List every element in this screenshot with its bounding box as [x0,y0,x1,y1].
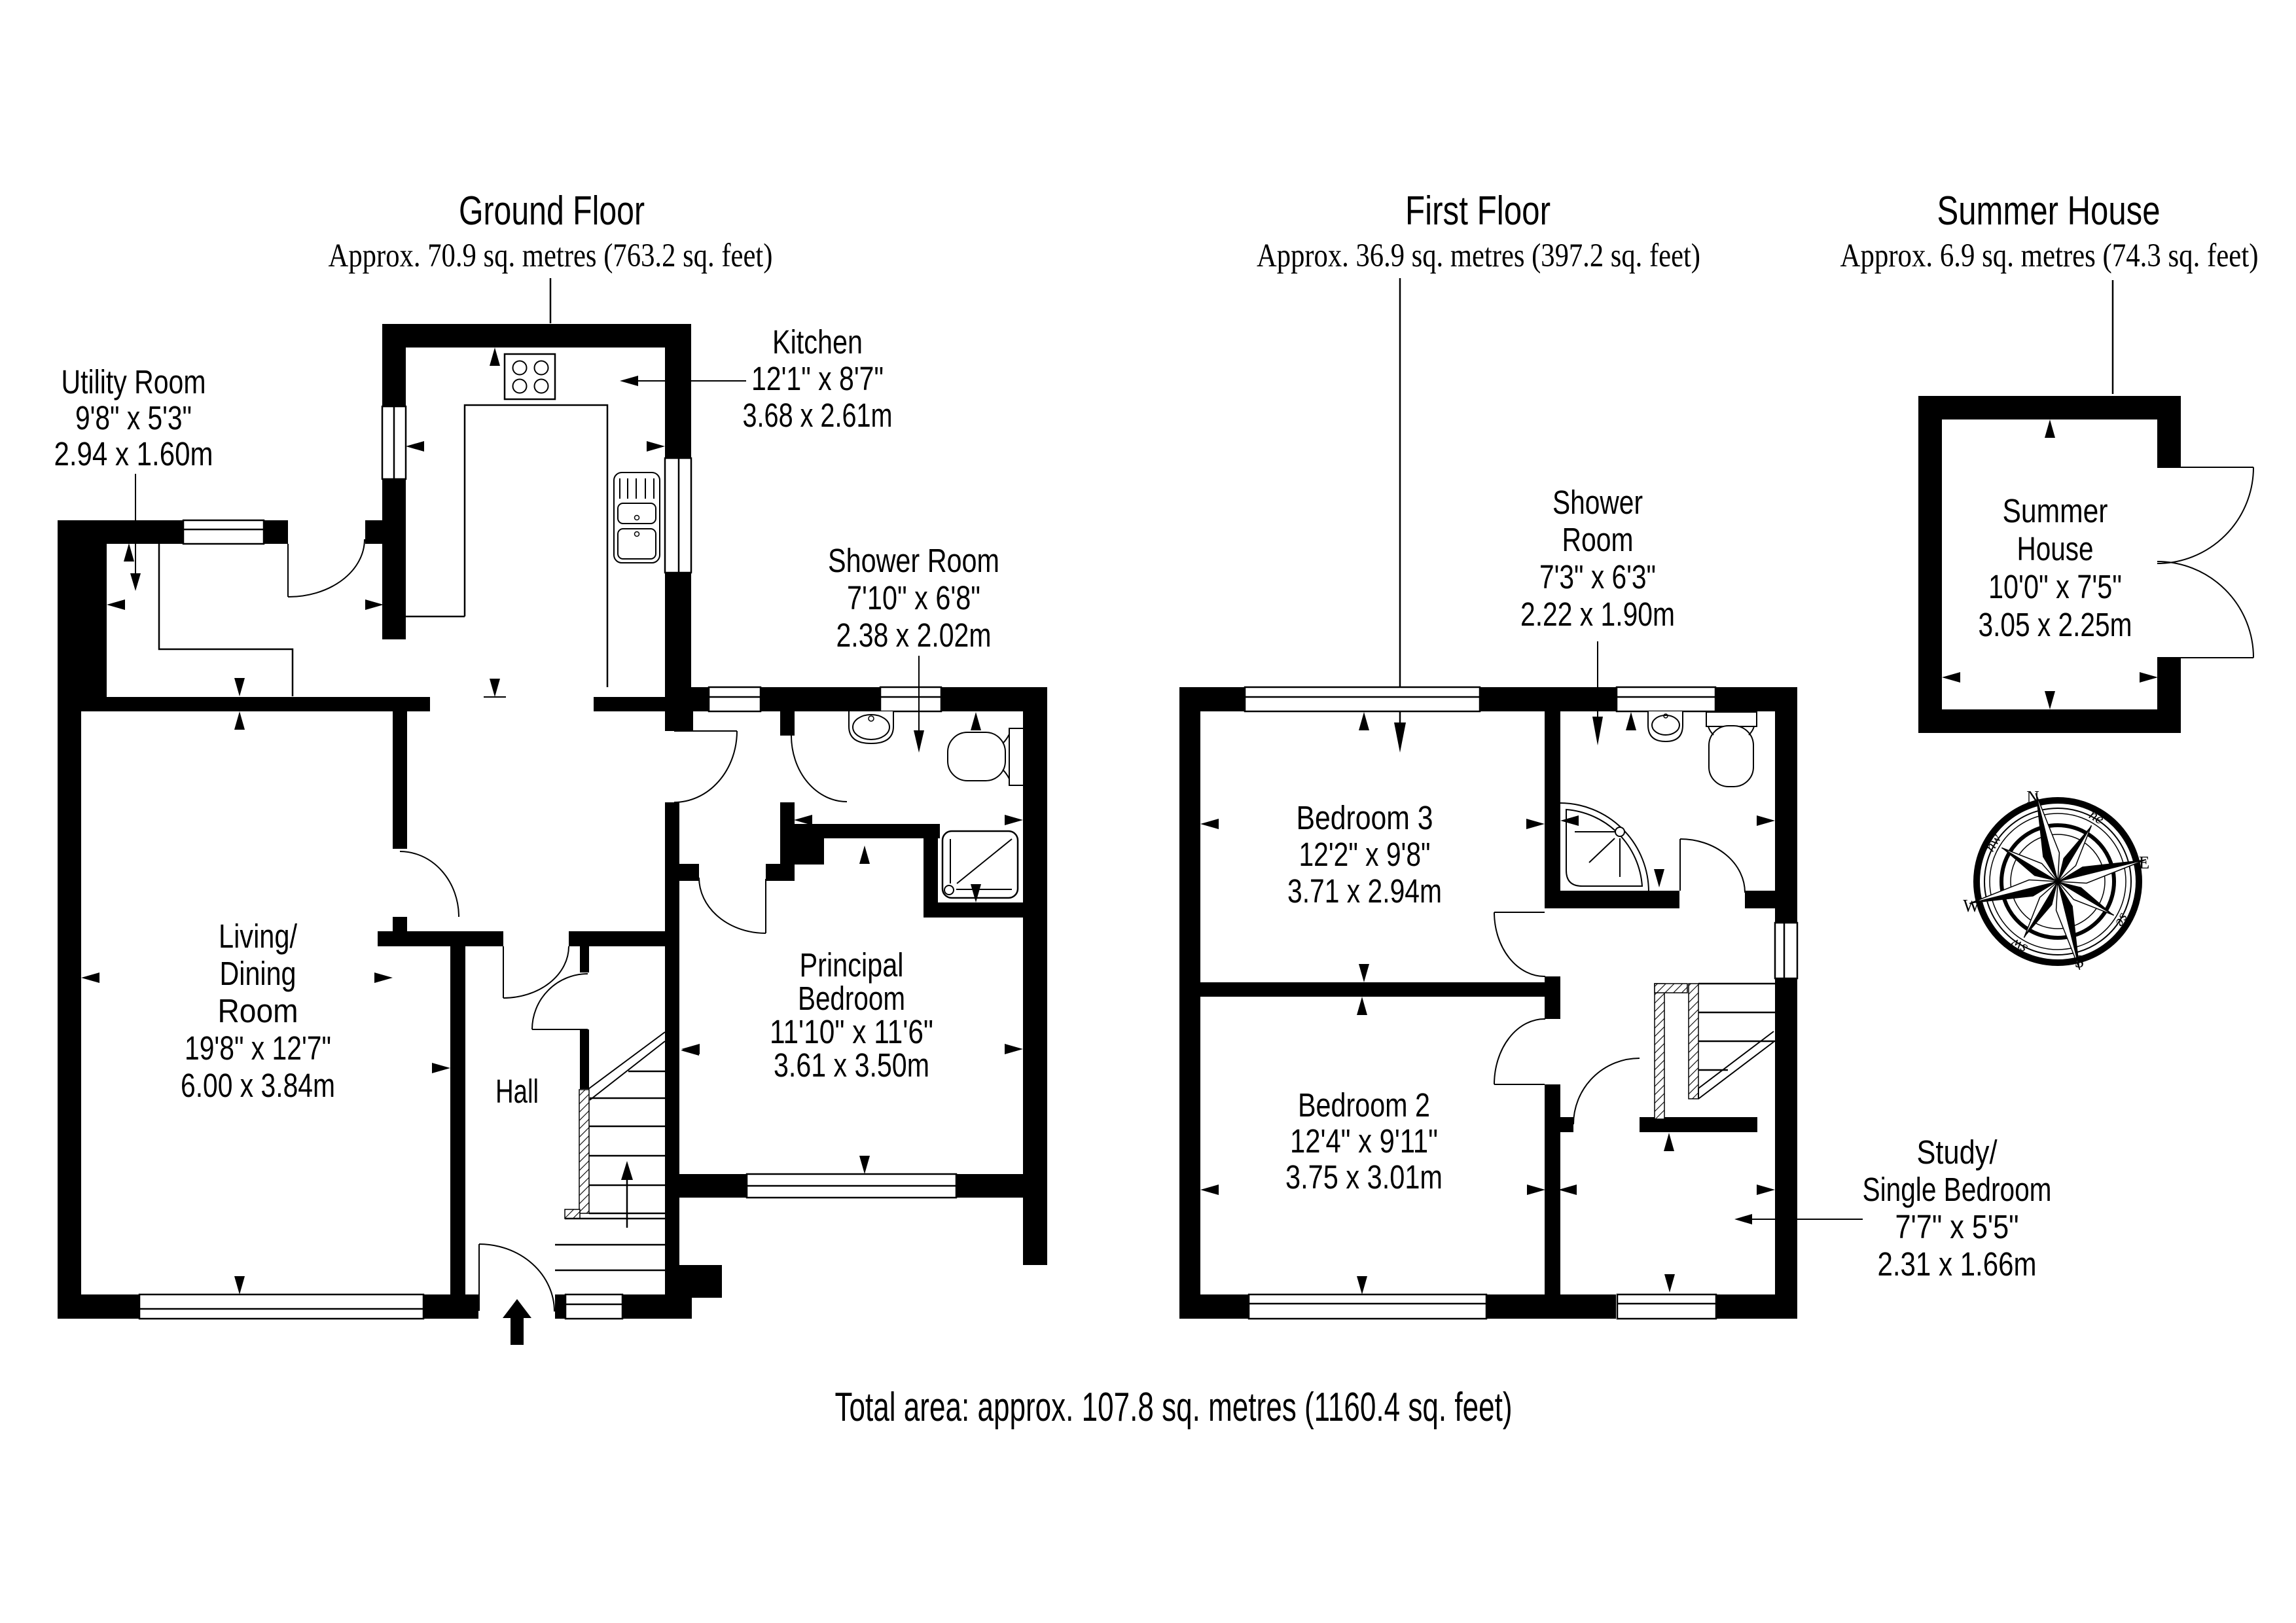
svg-text:19'8" x 12'7": 19'8" x 12'7" [185,1029,331,1067]
svg-text:2.22 x 1.90m: 2.22 x 1.90m [1520,596,1675,633]
svg-text:Dining: Dining [220,955,296,992]
svg-text:W: W [1963,896,1980,916]
svg-text:Summer House: Summer House [1937,188,2161,234]
svg-text:12'4" x 9'11": 12'4" x 9'11" [1290,1122,1438,1160]
svg-text:Study/: Study/ [1917,1133,1998,1171]
svg-text:7'7" x 5'5": 7'7" x 5'5" [1895,1208,2019,1245]
svg-text:3.61 x 3.50m: 3.61 x 3.50m [774,1046,929,1084]
svg-text:S: S [2074,952,2084,971]
svg-text:7'10" x 6'8": 7'10" x 6'8" [847,579,980,616]
svg-text:3.71 x 2.94m: 3.71 x 2.94m [1287,872,1442,910]
svg-text:House: House [2017,530,2094,567]
svg-text:10'0" x 7'5": 10'0" x 7'5" [1988,568,2122,605]
svg-text:9'8" x 5'3": 9'8" x 5'3" [75,399,192,437]
svg-text:3.75 x 3.01m: 3.75 x 3.01m [1285,1158,1443,1196]
svg-text:Kitchen: Kitchen [772,323,863,361]
svg-text:Ground Floor: Ground Floor [459,188,645,234]
svg-text:7'3" x 6'3": 7'3" x 6'3" [1539,558,1656,596]
svg-text:Total area: approx. 107.8 sq.: Total area: approx. 107.8 sq. metres (11… [835,1385,1513,1430]
svg-text:Summer: Summer [2003,492,2108,529]
svg-text:12'2" x 9'8": 12'2" x 9'8" [1299,836,1431,873]
svg-text:3.05 x 2.25m: 3.05 x 2.25m [1979,606,2132,643]
svg-text:11'10" x 11'6": 11'10" x 11'6" [770,1013,933,1050]
svg-text:12'1" x 8'7": 12'1" x 8'7" [751,360,884,397]
svg-text:Approx. 70.9 sq. metres (763.2: Approx. 70.9 sq. metres (763.2 sq. feet) [329,238,773,274]
svg-text:Shower Room: Shower Room [828,542,999,579]
svg-text:Living/: Living/ [219,918,298,955]
svg-text:2.31 x 1.66m: 2.31 x 1.66m [1878,1245,2037,1283]
svg-text:Hall: Hall [495,1073,539,1110]
svg-text:Bedroom 3: Bedroom 3 [1297,799,1433,836]
svg-text:Single Bedroom: Single Bedroom [1863,1171,2052,1208]
svg-text:Approx. 36.9 sq. metres (397.2: Approx. 36.9 sq. metres (397.2 sq. feet) [1257,238,1700,274]
svg-text:N: N [2026,787,2039,807]
svg-text:Bedroom: Bedroom [798,980,905,1017]
svg-text:Utility Room: Utility Room [62,363,206,401]
svg-text:Shower: Shower [1552,484,1643,521]
svg-text:Approx. 6.9 sq. metres (74.3 s: Approx. 6.9 sq. metres (74.3 sq. feet) [1840,238,2259,274]
svg-text:First Floor: First Floor [1405,188,1551,234]
svg-text:Bedroom 2: Bedroom 2 [1298,1086,1430,1124]
svg-text:2.38 x 2.02m: 2.38 x 2.02m [836,616,992,654]
svg-text:Room: Room [1562,521,1634,558]
svg-text:Principal: Principal [800,946,904,984]
svg-text:6.00 x 3.84m: 6.00 x 3.84m [181,1067,335,1104]
svg-text:3.68 x 2.61m: 3.68 x 2.61m [743,397,893,434]
svg-text:Room: Room [218,992,298,1029]
svg-text:2.94 x 1.60m: 2.94 x 1.60m [54,435,213,473]
svg-text:E: E [2139,853,2150,872]
